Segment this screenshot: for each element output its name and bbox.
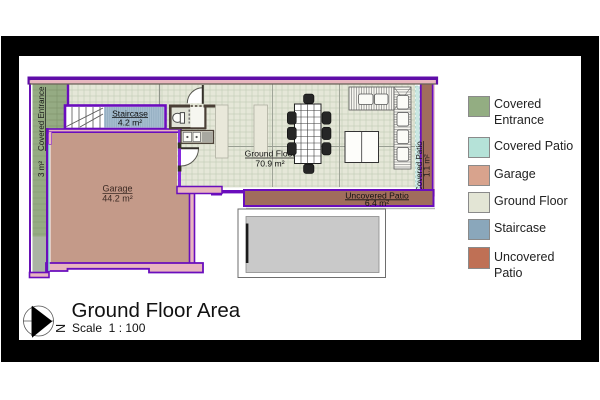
svg-text:4.2 m²: 4.2 m²	[118, 118, 142, 128]
svg-text:Covered Entrance: Covered Entrance	[37, 86, 46, 151]
svg-text:1.1 m²: 1.1 m²	[423, 154, 432, 177]
svg-text:Garage: Garage	[102, 183, 132, 193]
svg-text:44.2 m²: 44.2 m²	[102, 194, 133, 204]
svg-text:70.9 m²: 70.9 m²	[255, 158, 284, 168]
svg-text:N: N	[53, 324, 67, 333]
svg-text:6.4 m²: 6.4 m²	[365, 198, 389, 208]
svg-text:3 m²: 3 m²	[37, 161, 46, 177]
